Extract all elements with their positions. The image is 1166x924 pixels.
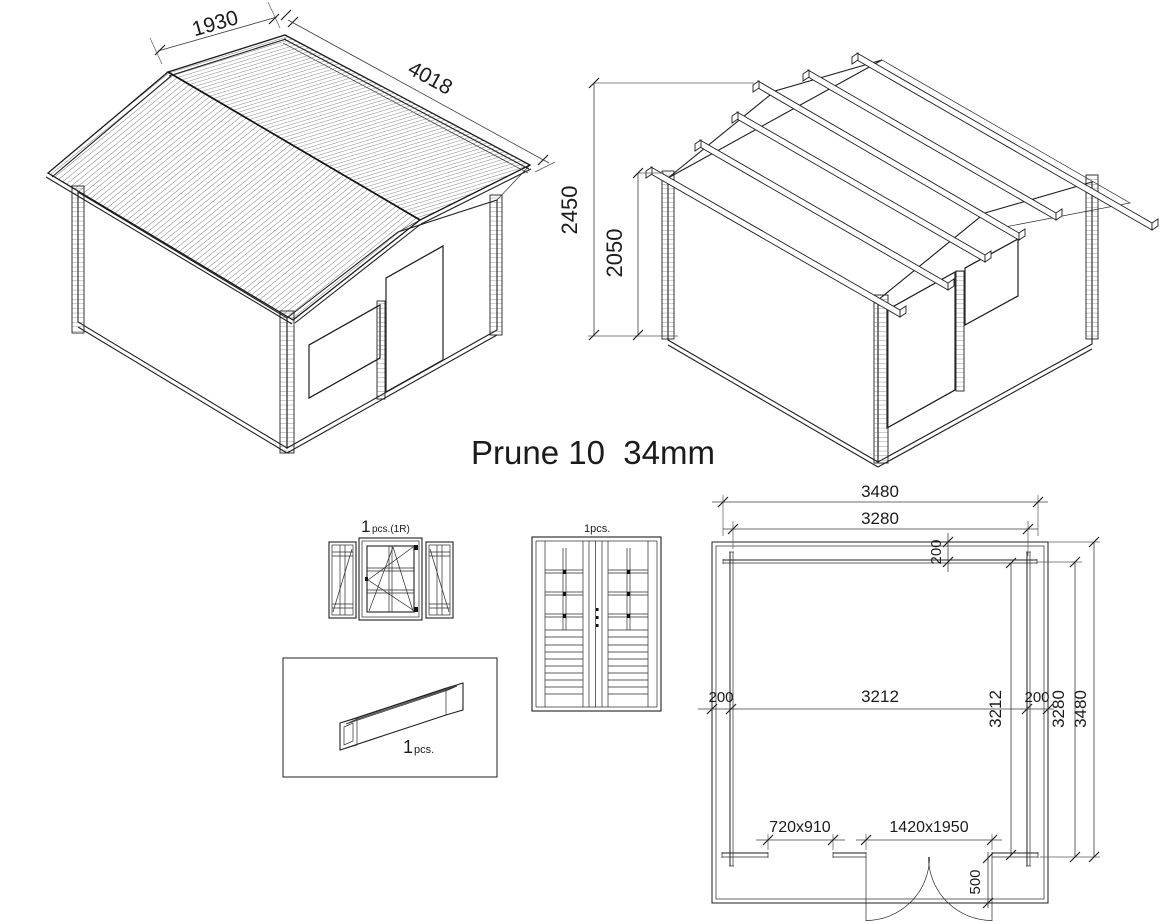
dim-left-offset: 200 [708, 689, 733, 706]
dim-roof-slope-width: 1930 [190, 6, 241, 41]
dim-wall-height: 2050 [602, 229, 627, 278]
dim-right-offset: 200 [1024, 689, 1049, 706]
window-shutters-detail: 1 pcs.(1R) [329, 517, 453, 620]
corner-post [72, 186, 84, 333]
dim-total-height: 2450 [557, 186, 582, 235]
window-qty-label: 1 [361, 517, 370, 536]
frame-cabin-view: 2450 2050 [557, 53, 1158, 467]
floor-plan: 3480 3280 200 200 3212 200 3212 3280 [698, 482, 1100, 921]
corner-post [874, 295, 888, 463]
roof-purlins [646, 53, 1158, 317]
dim-inner-width: 3212 [861, 687, 899, 706]
flowerbox-qty-note: pcs. [414, 744, 434, 756]
dim-canopy-depth: 500 [967, 869, 984, 894]
side-wall [668, 178, 878, 462]
corner-post [1086, 175, 1098, 339]
page-title: Prune 10 34mm [471, 434, 715, 471]
double-door-detail: 1pcs. [532, 523, 661, 711]
dim-overall-width: 3480 [861, 482, 899, 501]
dim-door-opening: 1420x1950 [889, 819, 968, 836]
dim-window-opening: 720x910 [769, 819, 830, 836]
window-opening [309, 305, 380, 398]
door-opening [887, 272, 955, 428]
corner-post [662, 171, 674, 339]
dim-rear-overhang: 200 [928, 539, 945, 564]
flowerbox-qty-label: 1 [403, 737, 413, 757]
drawing-sheet: 1930 4018 [0, 0, 1166, 924]
dim-roof-length: 4018 [404, 57, 456, 100]
door-lower-panels [545, 645, 648, 694]
front-gable-wall [878, 182, 1092, 462]
technical-drawing: 1930 4018 [0, 0, 1166, 924]
jamb-post [956, 271, 964, 391]
flower-box-detail: 1 pcs. [283, 658, 497, 777]
assembled-cabin-view: 1930 4018 [46, 2, 555, 453]
dim-wall-width: 3280 [861, 509, 899, 528]
dim-inner-depth: 3212 [986, 690, 1005, 728]
jamb-post [377, 301, 385, 399]
door-qty-label: 1pcs. [584, 523, 610, 535]
corner-post [280, 311, 294, 453]
window-qty-note: pcs.(1R) [372, 524, 410, 535]
dim-overall-depth: 3480 [1071, 690, 1090, 728]
far-gable [668, 60, 882, 178]
corner-post [490, 195, 502, 335]
dim-wall-depth: 3280 [1049, 690, 1068, 728]
